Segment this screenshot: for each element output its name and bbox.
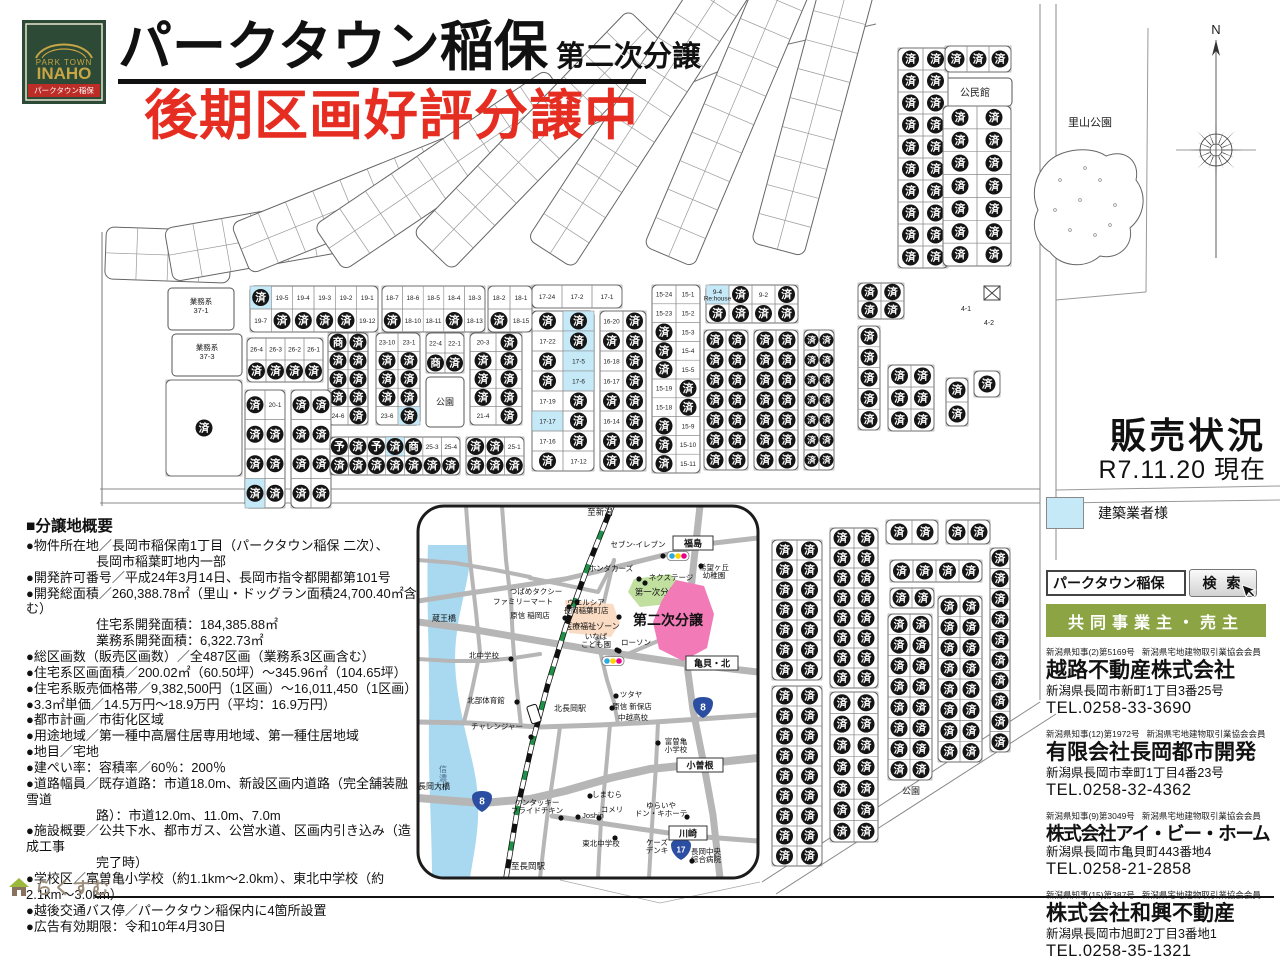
svg-text:済: 済 <box>930 251 941 264</box>
svg-text:済: 済 <box>917 392 928 405</box>
svg-text:済: 済 <box>804 830 815 843</box>
svg-text:済: 済 <box>782 394 793 407</box>
company-license: 新潟県知事(12)第1972号新潟県宅地建物取引業協会会員 <box>1046 728 1266 740</box>
poi-label: しまむら <box>592 790 622 799</box>
svg-text:済: 済 <box>930 163 941 176</box>
intersection-label: 小曽根 <box>677 758 723 772</box>
svg-text:済: 済 <box>779 690 790 703</box>
svg-text:済: 済 <box>966 662 977 675</box>
svg-text:済: 済 <box>408 459 419 472</box>
svg-text:済: 済 <box>837 739 848 752</box>
lot-number: 18-1 <box>515 295 528 302</box>
svg-text:済: 済 <box>807 354 816 365</box>
svg-text:済: 済 <box>861 696 872 709</box>
poi-dot <box>562 615 567 620</box>
svg-text:済: 済 <box>894 680 905 693</box>
svg-text:済: 済 <box>779 790 790 803</box>
house-icon <box>8 877 30 897</box>
svg-text:済: 済 <box>864 351 875 364</box>
lot-number: 15-1 <box>682 292 695 299</box>
lot-block: 済20-1済済済済済済 <box>245 390 285 508</box>
overview-item: ●開発総面積／260,388.78㎡（里山・ドッグラン面積24,700.40㎡含… <box>26 586 420 649</box>
overview-item: ●都市計画／市街化区域 <box>26 712 420 728</box>
svg-text:済: 済 <box>916 722 927 735</box>
svg-text:済: 済 <box>732 434 743 447</box>
svg-text:済: 済 <box>837 652 848 665</box>
svg-text:済: 済 <box>952 384 963 397</box>
lot-number: 18-5 <box>427 295 440 302</box>
lot-block: 9-4Re:house済9-2済済済済済 <box>704 285 798 323</box>
svg-text:済: 済 <box>659 344 670 357</box>
svg-text:8: 8 <box>479 797 485 808</box>
rakusumu-logo: らくすむ <box>8 874 111 899</box>
svg-text:済: 済 <box>982 378 993 391</box>
svg-text:済: 済 <box>404 354 415 367</box>
svg-text:済: 済 <box>989 180 1000 193</box>
svg-text:亀貝・北: 亀貝・北 <box>694 658 730 669</box>
lot-block: 済済済済済済済済済済済済済済 <box>754 330 798 470</box>
campaign-banner: 後期区画好評分譲中 <box>144 88 701 145</box>
svg-text:済: 済 <box>277 314 288 327</box>
company-entry: 新潟県知事(2)第5169号新潟県宅地建物取引業協会会員越路不動産株式会社新潟県… <box>1046 646 1266 719</box>
svg-text:済: 済 <box>864 330 875 343</box>
svg-text:済: 済 <box>250 428 261 441</box>
svg-text:済: 済 <box>683 382 694 395</box>
svg-text:済: 済 <box>732 374 743 387</box>
lot-block: 済済済 <box>945 46 1011 72</box>
lot-number: 26-2 <box>288 346 301 353</box>
lot-number: 17-12 <box>570 458 587 465</box>
lot-number: 16-14 <box>603 418 620 425</box>
svg-text:商: 商 <box>408 440 419 453</box>
svg-text:済: 済 <box>837 612 848 625</box>
svg-text:済: 済 <box>905 53 916 66</box>
builder-lot-swatch <box>1046 497 1084 529</box>
svg-text:済: 済 <box>732 334 743 347</box>
inset-text: 蔵王橋 <box>432 613 456 623</box>
svg-text:済: 済 <box>837 825 848 838</box>
company-address: 新潟県長岡市幸町1丁目4番23号 <box>1046 766 1266 781</box>
svg-text:済: 済 <box>296 487 307 500</box>
svg-text:済: 済 <box>779 584 790 597</box>
lot-number: 25-4 <box>444 444 457 451</box>
header: PARK TOWN INAHO パークタウン稲保 パークタウン稲保 第二次分譲 … <box>22 20 701 145</box>
road-line <box>1056 292 1146 300</box>
svg-text:済: 済 <box>782 374 793 387</box>
svg-text:済: 済 <box>930 75 941 88</box>
svg-text:済: 済 <box>779 810 790 823</box>
svg-text:済: 済 <box>837 761 848 774</box>
satoyama-park <box>1034 150 1143 265</box>
poi-label: チャレンジャー <box>471 722 523 731</box>
traffic-signal-icon <box>602 657 624 666</box>
poi-dot <box>636 576 641 581</box>
svg-text:済: 済 <box>804 624 815 637</box>
svg-text:済: 済 <box>659 457 670 470</box>
svg-text:済: 済 <box>683 401 694 414</box>
svg-text:済: 済 <box>710 414 721 427</box>
svg-text:済: 済 <box>905 229 916 242</box>
lot-number: 19-1 <box>361 295 374 302</box>
search-input[interactable] <box>1046 570 1186 596</box>
svg-text:済: 済 <box>822 354 831 365</box>
svg-text:済: 済 <box>894 370 905 383</box>
svg-text:済: 済 <box>334 459 345 472</box>
svg-text:済: 済 <box>710 354 721 367</box>
map-label: 里山公園 <box>1068 116 1112 129</box>
lot-number: 15-18 <box>656 405 673 412</box>
svg-text:済: 済 <box>316 428 327 441</box>
svg-text:済: 済 <box>732 354 743 367</box>
svg-text:済: 済 <box>504 354 515 367</box>
svg-text:済: 済 <box>478 354 489 367</box>
svg-text:済: 済 <box>427 459 438 472</box>
map-label: 4-2 <box>984 320 994 327</box>
poi-label: コメリ <box>601 805 624 814</box>
svg-text:済: 済 <box>864 392 875 405</box>
overview-item: ●広告有効期限：令和10年4月30日 <box>26 919 420 935</box>
lot-block: 17-2417-217-1 <box>532 285 622 308</box>
poi-dot <box>514 699 519 704</box>
svg-text:N: N <box>1211 22 1220 37</box>
svg-text:済: 済 <box>944 662 955 675</box>
company-name: 有限会社長岡都市開発 <box>1046 741 1266 765</box>
svg-text:済: 済 <box>955 157 966 170</box>
svg-text:済: 済 <box>916 659 927 672</box>
lot-block: 22-422-1商済 <box>426 333 464 373</box>
svg-text:済: 済 <box>710 374 721 387</box>
svg-text:済: 済 <box>779 770 790 783</box>
svg-text:済: 済 <box>490 459 501 472</box>
lot-block: 商済済済済済済済24-6済 <box>328 333 368 425</box>
svg-text:済: 済 <box>942 565 953 578</box>
company-phone: TEL.0258-21-2858 <box>1046 860 1266 880</box>
svg-text:済: 済 <box>509 459 520 472</box>
svg-text:済: 済 <box>758 307 769 320</box>
poi-label: 長岡中央綜合病院 <box>691 846 721 864</box>
poi-label: 東北中学校 <box>582 838 620 848</box>
svg-text:済: 済 <box>333 391 344 404</box>
svg-text:済: 済 <box>289 365 300 378</box>
lot-block: 済済 <box>946 520 990 544</box>
lot-number: 15-24 <box>656 292 673 299</box>
svg-text:済: 済 <box>989 134 1000 147</box>
svg-text:済: 済 <box>573 435 584 448</box>
svg-text:済: 済 <box>804 644 815 657</box>
svg-text:済: 済 <box>995 715 1006 728</box>
svg-text:済: 済 <box>955 111 966 124</box>
svg-text:済: 済 <box>760 394 771 407</box>
search-row: 検 索 <box>1046 569 1266 597</box>
svg-text:済: 済 <box>804 564 815 577</box>
svg-text:済: 済 <box>905 97 916 110</box>
lot-number: 19-4 <box>297 295 310 302</box>
svg-text:済: 済 <box>542 315 553 328</box>
svg-text:済: 済 <box>606 335 617 348</box>
overview-item: ●物件所在地／長岡市稲保南1丁目（パークタウン稲保 二次）、長岡市稲葉町地内一部 <box>26 538 420 570</box>
svg-text:済: 済 <box>449 314 460 327</box>
lot-block: 16-20済済済16-18済16-17済済済16-14済済済済済 <box>600 311 646 471</box>
svg-text:済: 済 <box>629 315 640 328</box>
svg-text:済: 済 <box>944 704 955 717</box>
svg-text:済: 済 <box>735 288 746 301</box>
lot-block: 済済済済済 <box>858 326 880 430</box>
svg-text:済: 済 <box>779 544 790 557</box>
svg-text:済: 済 <box>894 701 905 714</box>
zone-label: 第二次分譲 <box>633 612 704 628</box>
lot-block: 済 <box>166 380 242 476</box>
svg-text:済: 済 <box>864 303 875 316</box>
svg-text:済: 済 <box>887 303 898 316</box>
lot-number: 26-4 <box>250 346 263 353</box>
poi-label: ツタヤ <box>620 690 643 699</box>
svg-text:済: 済 <box>606 435 617 448</box>
svg-text:済: 済 <box>710 454 721 467</box>
lot-number: 17-5 <box>572 358 585 365</box>
lot-number: 15-19 <box>656 386 673 393</box>
svg-text:済: 済 <box>896 592 907 605</box>
legend-row: 建築業者様 <box>1046 497 1266 529</box>
company-license: 新潟県知事(2)第5169号新潟県宅地建物取引業協会会員 <box>1046 646 1266 658</box>
svg-text:済: 済 <box>864 372 875 385</box>
svg-text:済: 済 <box>341 314 352 327</box>
intersection-label: 亀貝・北 <box>686 656 738 670</box>
lot-block: 済済済済済済 <box>888 365 934 431</box>
svg-text:済: 済 <box>896 565 907 578</box>
svg-text:済: 済 <box>779 604 790 617</box>
svg-text:済: 済 <box>837 782 848 795</box>
intersection-label: 川崎 <box>669 826 707 840</box>
svg-text:済: 済 <box>989 202 1000 215</box>
svg-text:済: 済 <box>822 374 831 385</box>
svg-text:済: 済 <box>542 375 553 388</box>
svg-text:済: 済 <box>760 374 771 387</box>
svg-text:済: 済 <box>944 724 955 737</box>
svg-text:済: 済 <box>804 790 815 803</box>
lot-block: 23-1023-1済済済済済済23-6済 <box>376 333 420 425</box>
svg-text:済: 済 <box>782 454 793 467</box>
svg-text:済: 済 <box>916 639 927 652</box>
svg-text:済: 済 <box>955 202 966 215</box>
svg-text:済: 済 <box>894 618 905 631</box>
svg-text:済: 済 <box>916 701 927 714</box>
svg-text:済: 済 <box>905 141 916 154</box>
lot-block: 済済済済済済済済済済済済済済済済 <box>830 528 878 688</box>
lot-number: 15-9 <box>682 423 695 430</box>
lot-block: 済済済済済済済済済済 <box>990 548 1010 752</box>
svg-text:済: 済 <box>710 434 721 447</box>
svg-text:済: 済 <box>382 354 393 367</box>
svg-text:済: 済 <box>966 600 977 613</box>
lot-number: 16-17 <box>603 378 620 385</box>
svg-text:済: 済 <box>382 391 393 404</box>
svg-text:済: 済 <box>659 438 670 451</box>
lot-number: 18-2 <box>493 295 506 302</box>
svg-text:済: 済 <box>837 572 848 585</box>
poi-label: 希望ヶ丘幼稚園 <box>699 562 729 580</box>
svg-text:済: 済 <box>779 644 790 657</box>
map-label: 4-1 <box>961 306 971 313</box>
lot-number: 18-11 <box>426 318 442 325</box>
svg-text:済: 済 <box>861 612 872 625</box>
svg-text:済: 済 <box>779 850 790 863</box>
lot-number: 25-3 <box>426 444 439 451</box>
svg-text:済: 済 <box>861 532 872 545</box>
svg-text:予: 予 <box>334 440 345 453</box>
svg-text:済: 済 <box>944 600 955 613</box>
lot-number: 17-24 <box>539 294 556 301</box>
page-title: パークタウン稲保 <box>118 20 548 74</box>
svg-text:済: 済 <box>629 335 640 348</box>
svg-text:済: 済 <box>804 690 815 703</box>
svg-text:済: 済 <box>781 307 792 320</box>
zone-label: 医療福祉ゾーン <box>564 621 620 631</box>
svg-text:済: 済 <box>894 742 905 755</box>
svg-text:済: 済 <box>995 53 1006 66</box>
svg-text:済: 済 <box>760 414 771 427</box>
svg-text:済: 済 <box>861 761 872 774</box>
svg-text:済: 済 <box>573 335 584 348</box>
svg-text:済: 済 <box>930 229 941 242</box>
svg-text:済: 済 <box>966 683 977 696</box>
map-label: 業務系 <box>190 296 213 306</box>
lot-number: 18-3 <box>468 295 481 302</box>
svg-text:済: 済 <box>861 782 872 795</box>
lot-number: 15-4 <box>682 348 695 355</box>
svg-text:済: 済 <box>353 391 364 404</box>
svg-text:済: 済 <box>807 394 816 405</box>
road-line <box>1146 28 1148 292</box>
overview-item: ●開発許可番号／平成24年3月14日、長岡市指令都開都第101号 <box>26 570 420 586</box>
lot-number: 19-2 <box>340 295 353 302</box>
road-line <box>560 880 660 903</box>
svg-text:済: 済 <box>989 111 1000 124</box>
svg-text:済: 済 <box>894 414 905 427</box>
svg-text:済: 済 <box>316 487 327 500</box>
title-underline <box>118 79 646 84</box>
overview-item: ●越後交通バス停／パークタウン稲保内に4箇所設置 <box>26 903 420 919</box>
svg-text:済: 済 <box>951 53 962 66</box>
lot-number: 17-2 <box>571 294 584 301</box>
lot-number: 16-18 <box>603 358 620 365</box>
svg-text:済: 済 <box>804 750 815 763</box>
svg-text:済: 済 <box>250 457 261 470</box>
company-entry: 新潟県知事(12)第1972号新潟県宅地建物取引業協会会員有限会社長岡都市開発新… <box>1046 728 1266 801</box>
sellers-heading: 共同事業主・売主 <box>1046 604 1266 637</box>
company-name: 株式会社和興不動産 <box>1046 902 1266 926</box>
svg-text:済: 済 <box>779 830 790 843</box>
svg-text:済: 済 <box>199 422 210 435</box>
svg-text:済: 済 <box>930 53 941 66</box>
svg-text:済: 済 <box>989 157 1000 170</box>
svg-text:済: 済 <box>989 225 1000 238</box>
svg-text:済: 済 <box>353 459 364 472</box>
svg-text:済: 済 <box>952 408 963 421</box>
svg-text:済: 済 <box>782 434 793 447</box>
svg-text:済: 済 <box>404 373 415 386</box>
lot-number: 15-11 <box>680 461 696 468</box>
lot-block: 済済済済済済済済済済済済済済 <box>804 330 834 470</box>
lot-block: 15-2415-115-2315-2済15-3済15-4済15-515-19済1… <box>652 285 700 473</box>
lot-number: 15-2 <box>682 311 695 318</box>
svg-text:済: 済 <box>390 440 401 453</box>
svg-text:済: 済 <box>930 119 941 132</box>
rakusumu-label: らくすむ <box>35 874 111 899</box>
svg-text:済: 済 <box>779 710 790 723</box>
svg-text:済: 済 <box>955 225 966 238</box>
svg-text:済: 済 <box>955 180 966 193</box>
overview-item: ●総区画数（販売区画数）／全487区画（業務系3区画含む） <box>26 649 420 665</box>
svg-text:済: 済 <box>710 334 721 347</box>
svg-text:済: 済 <box>965 565 976 578</box>
svg-text:済: 済 <box>494 314 505 327</box>
lot-block: 済済済済済済済済済済済済済済済済 <box>938 596 982 762</box>
company-address: 新潟県長岡市亀貝町443番地4 <box>1046 845 1266 860</box>
svg-text:済: 済 <box>955 134 966 147</box>
poi-dot <box>508 656 513 661</box>
lot-number: 20-3 <box>477 340 490 347</box>
svg-text:済: 済 <box>387 314 398 327</box>
lot-number: 18-10 <box>405 318 422 325</box>
poi-dot <box>575 814 580 819</box>
lot-block: 済済 <box>890 588 934 608</box>
svg-text:済: 済 <box>995 674 1006 687</box>
lot-number: 15-5 <box>682 367 695 374</box>
svg-text:済: 済 <box>918 592 929 605</box>
company-phone: TEL.0258-32-4362 <box>1046 781 1266 801</box>
lot-number: 15-23 <box>656 311 673 318</box>
poi-label: ケーズデンキ <box>646 837 669 855</box>
svg-text:済: 済 <box>995 633 1006 646</box>
svg-text:済: 済 <box>822 414 831 425</box>
road-line <box>660 882 760 903</box>
lot-number: 24-6 <box>332 413 345 420</box>
lot-number: 20-1 <box>269 402 282 409</box>
svg-text:済: 済 <box>930 141 941 154</box>
lot-number: 25-1 <box>508 444 521 451</box>
svg-text:済: 済 <box>712 307 723 320</box>
utility-symbol <box>984 286 1000 300</box>
poi-label: 原信 新保店 <box>612 701 652 711</box>
lot-number: 17-17 <box>539 418 556 425</box>
svg-text:済: 済 <box>504 336 515 349</box>
poi-label: ウエルシア長岡稲葉町店 <box>564 598 609 615</box>
svg-text:済: 済 <box>449 357 460 370</box>
svg-text:済: 済 <box>905 75 916 88</box>
lot-block: 済済済済済済済済済済済済済済 <box>704 330 748 470</box>
poi-label: つばめタクシー <box>510 587 563 596</box>
map-label: 公園 <box>902 786 920 796</box>
svg-text:済: 済 <box>779 730 790 743</box>
svg-text:済: 済 <box>930 207 941 220</box>
svg-text:済: 済 <box>916 763 927 776</box>
svg-text:予: 予 <box>371 440 382 453</box>
map-label: 公園 <box>436 397 454 407</box>
svg-text:済: 済 <box>822 394 831 405</box>
svg-text:済: 済 <box>807 454 816 465</box>
lot-block: 20-3済済済済済済済21-4済 <box>470 333 522 425</box>
svg-text:済: 済 <box>861 592 872 605</box>
inaho-logo: PARK TOWN INAHO パークタウン稲保 <box>22 20 106 104</box>
lot-block: 済済済済 <box>858 283 904 319</box>
svg-text:済: 済 <box>735 307 746 320</box>
search-button[interactable]: 検 索 <box>1189 569 1257 597</box>
lot-number: 18-15 <box>513 318 530 325</box>
svg-text:済: 済 <box>478 391 489 404</box>
svg-text:商: 商 <box>333 336 344 349</box>
svg-text:済: 済 <box>270 428 281 441</box>
svg-text:済: 済 <box>779 664 790 677</box>
